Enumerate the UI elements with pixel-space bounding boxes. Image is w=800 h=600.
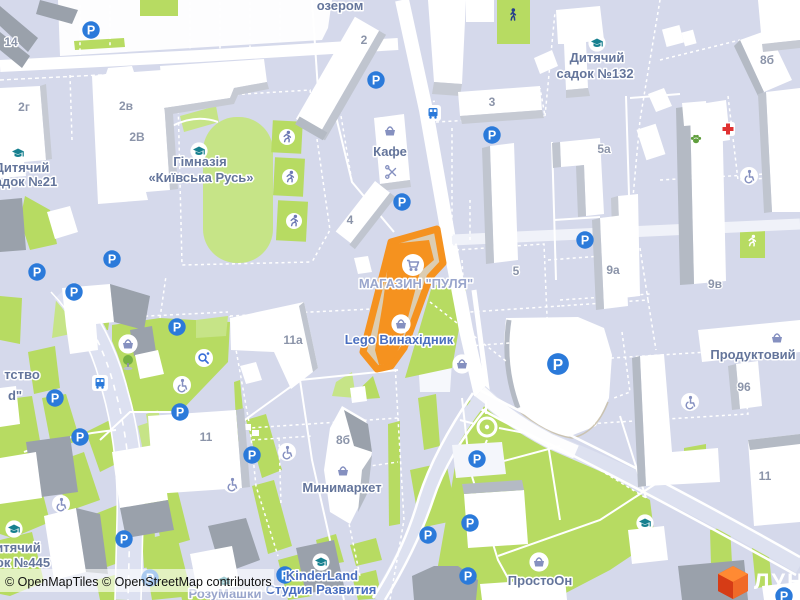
svg-text:9а: 9а bbox=[606, 263, 620, 277]
svg-text:11: 11 bbox=[759, 469, 772, 483]
svg-text:ок №445: ок №445 bbox=[0, 555, 50, 570]
svg-text:тство: тство bbox=[4, 367, 40, 382]
svg-text:d": d" bbox=[8, 388, 22, 403]
svg-text:«Київська Русь»: «Київська Русь» bbox=[148, 170, 253, 185]
svg-text:Продуктовий: Продуктовий bbox=[710, 347, 795, 362]
svg-text:5: 5 bbox=[513, 264, 520, 278]
svg-text:9в: 9в bbox=[708, 277, 722, 291]
svg-text:2В: 2В bbox=[129, 130, 145, 144]
svg-text:адок №21: адок №21 bbox=[0, 174, 57, 189]
svg-text:МАГАЗИН "ПУЛЯ": МАГАЗИН "ПУЛЯ" bbox=[359, 276, 473, 291]
svg-text:4: 4 bbox=[347, 213, 354, 227]
svg-text:11: 11 bbox=[200, 430, 213, 444]
svg-text:Студия Развития: Студия Развития bbox=[266, 582, 377, 597]
svg-text:Lego Винахідник: Lego Винахідник bbox=[345, 332, 454, 347]
svg-text:ЛУН: ЛУН bbox=[754, 569, 800, 594]
svg-text:3: 3 bbox=[489, 95, 496, 109]
svg-text:14: 14 bbox=[4, 35, 18, 49]
svg-text:2: 2 bbox=[361, 33, 368, 47]
svg-text:8б: 8б bbox=[336, 433, 350, 447]
svg-text:Дитячий: Дитячий bbox=[0, 160, 49, 175]
svg-text:садок №132: садок №132 bbox=[556, 66, 633, 81]
svg-text:Минимаркет: Минимаркет bbox=[302, 480, 381, 495]
svg-text:2г: 2г bbox=[18, 100, 30, 114]
svg-text:8б: 8б bbox=[760, 53, 774, 67]
svg-text:Гімназія: Гімназія bbox=[173, 154, 227, 169]
svg-text:© OpenMapTiles © OpenStreetMap: © OpenMapTiles © OpenStreetMap contribut… bbox=[5, 575, 272, 589]
svg-text:5а: 5а bbox=[597, 142, 611, 156]
svg-text:11а: 11а bbox=[283, 333, 303, 347]
svg-text:ПростоОн: ПростоОн bbox=[508, 573, 572, 588]
svg-text:Кафе: Кафе bbox=[373, 144, 407, 159]
svg-text:Дитячий: Дитячий bbox=[570, 50, 625, 65]
svg-text:итячий: итячий bbox=[0, 540, 41, 555]
svg-text:2в: 2в bbox=[119, 99, 133, 113]
svg-text:KinderLand: KinderLand bbox=[286, 568, 358, 583]
svg-text:96: 96 bbox=[737, 380, 751, 394]
svg-text:озером: озером bbox=[317, 0, 364, 13]
